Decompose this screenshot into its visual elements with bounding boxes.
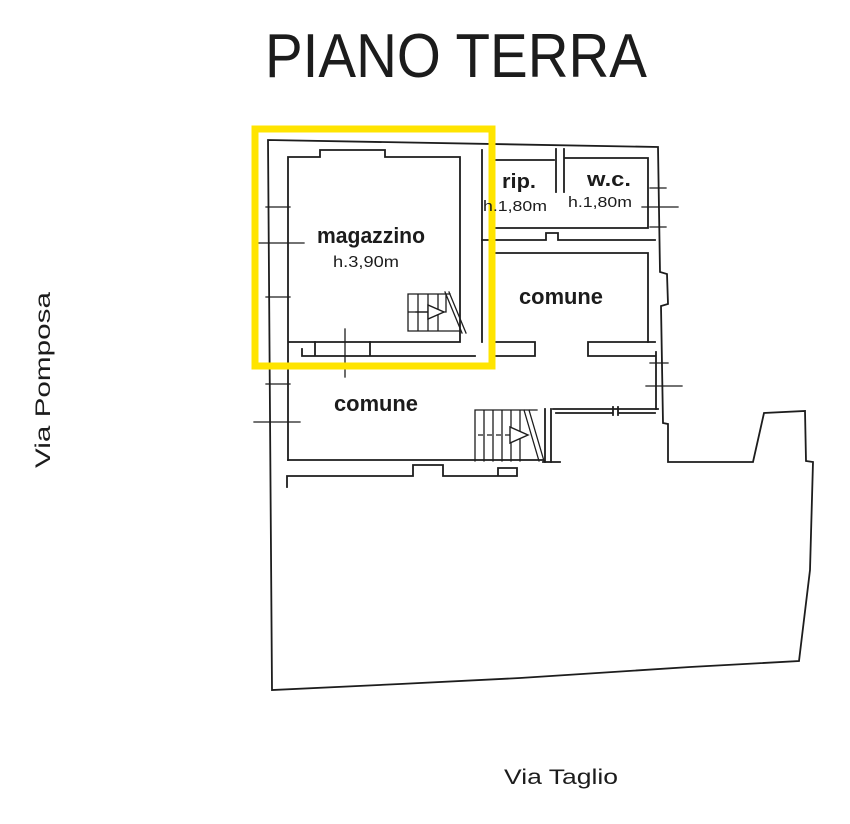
room-label-comune-lower: comune [334,391,418,416]
room-label-magazzino: magazzino [317,223,425,248]
room-height-magazzino: h.3,90m [333,254,399,271]
floor-plan-canvas: PIANO TERRA magazzino h.3,90m rip. h.1,8… [0,0,850,824]
corridor-walls [545,407,658,462]
street-label-via-taglio: Via Taglio [504,766,618,789]
left-wall-window-ticks [254,207,304,422]
stair-icon-main [475,410,544,461]
stair-arrow-icon [428,305,444,319]
room-label-rip: rip. [502,171,536,193]
comune-lower-walls [287,460,560,487]
room-height-wc: h.1,80m [568,194,632,211]
comune-upper-walls [493,253,656,409]
floor-plan-page: PIANO TERRA magazzino h.3,90m rip. h.1,8… [0,0,850,824]
room-label-comune-upper: comune [519,284,603,309]
magazzino-south-wall [302,342,655,356]
room-label-wc: w.c. [586,169,631,191]
stair-icon-magazzino [408,292,466,333]
street-label-via-pomposa: Via Pomposa [32,292,55,468]
stair-arrow-icon [510,427,528,443]
room-height-rip: h.1,80m [483,198,547,215]
page-title: PIANO TERRA [265,22,648,91]
